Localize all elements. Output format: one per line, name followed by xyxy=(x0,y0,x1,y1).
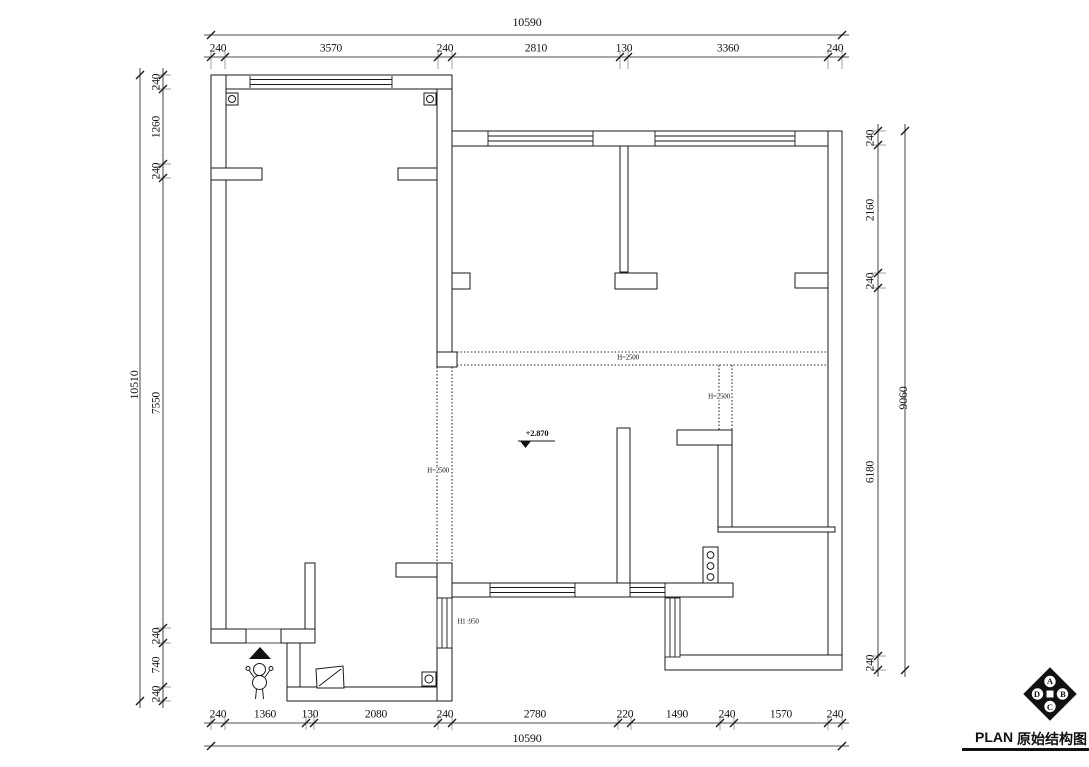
column-posts xyxy=(226,93,436,686)
dim-top-4: 130 xyxy=(616,43,633,55)
dimension-extension-lines xyxy=(156,51,886,730)
drawing-title-name: 原始结构图 xyxy=(1017,729,1087,749)
floorplan-drawing xyxy=(0,0,1089,767)
dim-top-3: 2810 xyxy=(525,43,547,55)
dim-bottom-5: 2780 xyxy=(524,709,546,721)
entry-door-threshold xyxy=(246,629,281,643)
dim-bottom-8: 240 xyxy=(719,709,736,721)
dim-left-6: 240 xyxy=(151,686,163,703)
compass-letter-d: D xyxy=(1031,688,1043,700)
dim-left-5: 740 xyxy=(151,657,163,674)
beam-height-label-right: H=2500 xyxy=(707,394,731,401)
title-underline xyxy=(962,748,1089,751)
window-height-label: H1 :950 xyxy=(456,619,479,626)
dim-right-1: 2160 xyxy=(865,199,877,221)
dim-bottom-4: 240 xyxy=(437,709,454,721)
dim-bottom-7: 1490 xyxy=(666,709,688,721)
dim-left-4: 240 xyxy=(151,628,163,645)
shoe-cabinet xyxy=(316,666,344,688)
dim-bottom-overall: 10590 xyxy=(512,732,541,744)
beam-height-label-left: H=2500 xyxy=(426,468,450,475)
dim-bottom-0: 240 xyxy=(210,709,227,721)
dim-top-0: 240 xyxy=(210,43,227,55)
dim-right-overall: 9060 xyxy=(897,386,909,409)
drawing-title-plan: PLAN xyxy=(975,729,1013,745)
dim-top-5: 3360 xyxy=(717,43,739,55)
compass-letter-c: C xyxy=(1044,701,1056,713)
level-mark-label: +2.870 xyxy=(526,429,549,438)
dim-right-2: 240 xyxy=(865,273,877,290)
dim-right-0: 240 xyxy=(865,130,877,147)
floorplan-sheet: 10590 240 3570 240 2810 130 3360 240 240… xyxy=(0,0,1089,767)
dim-bottom-3: 2080 xyxy=(365,709,387,721)
dim-bottom-2: 130 xyxy=(302,709,319,721)
dim-bottom-10: 240 xyxy=(827,709,844,721)
entry-arrow-icon xyxy=(249,647,271,659)
level-mark-symbol xyxy=(518,441,555,448)
dim-top-overall: 10590 xyxy=(512,16,541,28)
beam-height-label-mid: H=2500 xyxy=(616,355,640,362)
dim-bottom-9: 1570 xyxy=(770,709,792,721)
dim-right-3: 6180 xyxy=(865,461,877,483)
dim-left-1: 1260 xyxy=(151,116,163,138)
dim-top-1: 3570 xyxy=(320,43,342,55)
dim-left-2: 240 xyxy=(151,163,163,180)
dim-right-4: 240 xyxy=(865,655,877,672)
dim-left-3: 7550 xyxy=(151,392,163,414)
interior-walls xyxy=(211,89,842,701)
dim-left-0: 240 xyxy=(151,74,163,91)
radiator xyxy=(703,547,718,583)
dim-top-2: 240 xyxy=(437,43,454,55)
person-icon xyxy=(246,664,273,700)
dim-top-6: 240 xyxy=(827,43,844,55)
dim-bottom-6: 220 xyxy=(617,709,634,721)
compass-letter-b: B xyxy=(1057,688,1069,700)
compass-letter-a: A xyxy=(1044,675,1056,687)
dim-left-overall: 10510 xyxy=(128,370,140,399)
dim-bottom-1: 1360 xyxy=(254,709,276,721)
